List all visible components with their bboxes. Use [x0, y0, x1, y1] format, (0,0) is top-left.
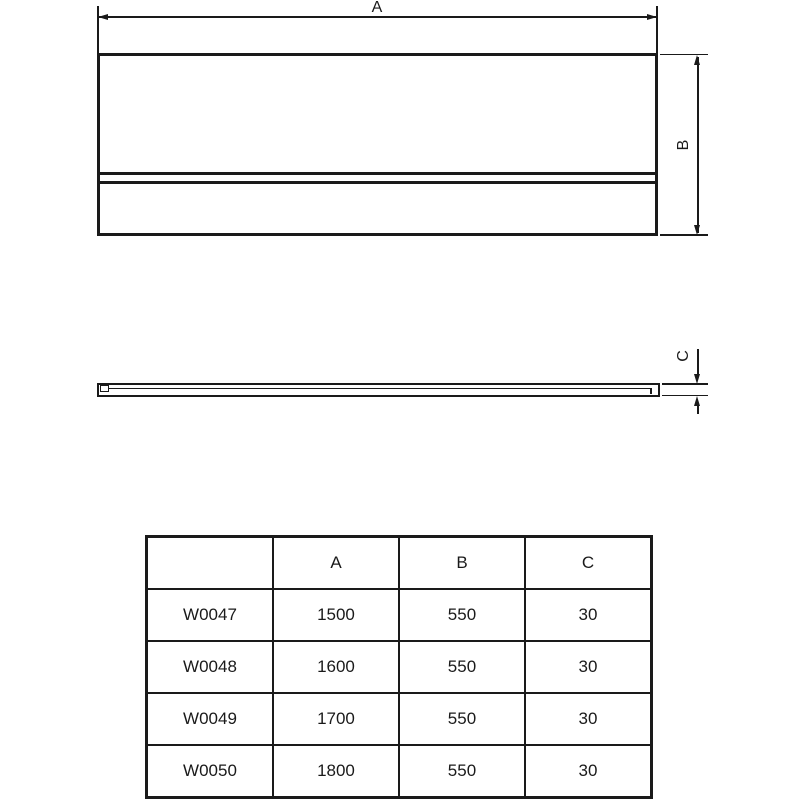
dim-b-label: B	[674, 132, 694, 158]
table-row: W0048 1600 550 30	[147, 641, 652, 693]
table-cell-a: 1800	[273, 745, 399, 798]
dim-b-extension-line-top	[660, 54, 708, 56]
dim-b-arrow-down-icon	[694, 225, 700, 235]
table-cell-c: 30	[525, 745, 652, 798]
table-cell-a: 1500	[273, 589, 399, 641]
table-row: W0049 1700 550 30	[147, 693, 652, 745]
table-row: W0047 1500 550 30	[147, 589, 652, 641]
dim-c-line-lower	[697, 406, 699, 414]
dim-c-arrow-down-icon	[694, 374, 700, 384]
table-header-cell-c: C	[525, 537, 652, 590]
dim-c-label: C	[674, 343, 694, 369]
table-cell-b: 550	[399, 641, 525, 693]
table-header-cell-a: A	[273, 537, 399, 590]
table-cell-a: 1600	[273, 641, 399, 693]
table-cell-c: 30	[525, 693, 652, 745]
table-cell-b: 550	[399, 745, 525, 798]
table-cell-c: 30	[525, 641, 652, 693]
table-cell-code: W0049	[147, 693, 273, 745]
dim-a-label: A	[364, 0, 390, 18]
table-header-row: A B C	[147, 537, 652, 590]
table-cell-code: W0050	[147, 745, 273, 798]
table-header-cell-code	[147, 537, 273, 590]
front-view-outline	[97, 53, 658, 236]
table-cell-b: 550	[399, 693, 525, 745]
dim-c-extension-line-top	[662, 383, 708, 385]
dim-c-arrow-up-icon	[694, 396, 700, 406]
table-header-cell-b: B	[399, 537, 525, 590]
dim-b-extension-line-bottom	[660, 234, 708, 236]
table-cell-code: W0048	[147, 641, 273, 693]
technical-drawing-canvas: A B C A B C W0047 1500 550 30	[0, 0, 800, 800]
dim-a-arrow-left-icon	[98, 14, 108, 20]
table-cell-a: 1700	[273, 693, 399, 745]
side-view-inner-line	[108, 388, 651, 390]
dim-b-arrow-up-icon	[694, 55, 700, 65]
table-cell-b: 550	[399, 589, 525, 641]
side-view-right-step	[650, 388, 652, 394]
dimensions-table: A B C W0047 1500 550 30 W0048 1600 550 3…	[145, 535, 653, 799]
dim-a-arrow-right-icon	[647, 14, 657, 20]
front-view-seam-line-lower	[100, 181, 655, 184]
dim-c-line-upper	[697, 349, 699, 375]
side-view-outline	[97, 383, 660, 397]
dim-c-extension-line-bottom	[662, 395, 708, 397]
front-view-seam-line-upper	[100, 172, 655, 175]
dim-b-line	[697, 57, 699, 233]
table-row: W0050 1800 550 30	[147, 745, 652, 798]
table-cell-code: W0047	[147, 589, 273, 641]
table-cell-c: 30	[525, 589, 652, 641]
